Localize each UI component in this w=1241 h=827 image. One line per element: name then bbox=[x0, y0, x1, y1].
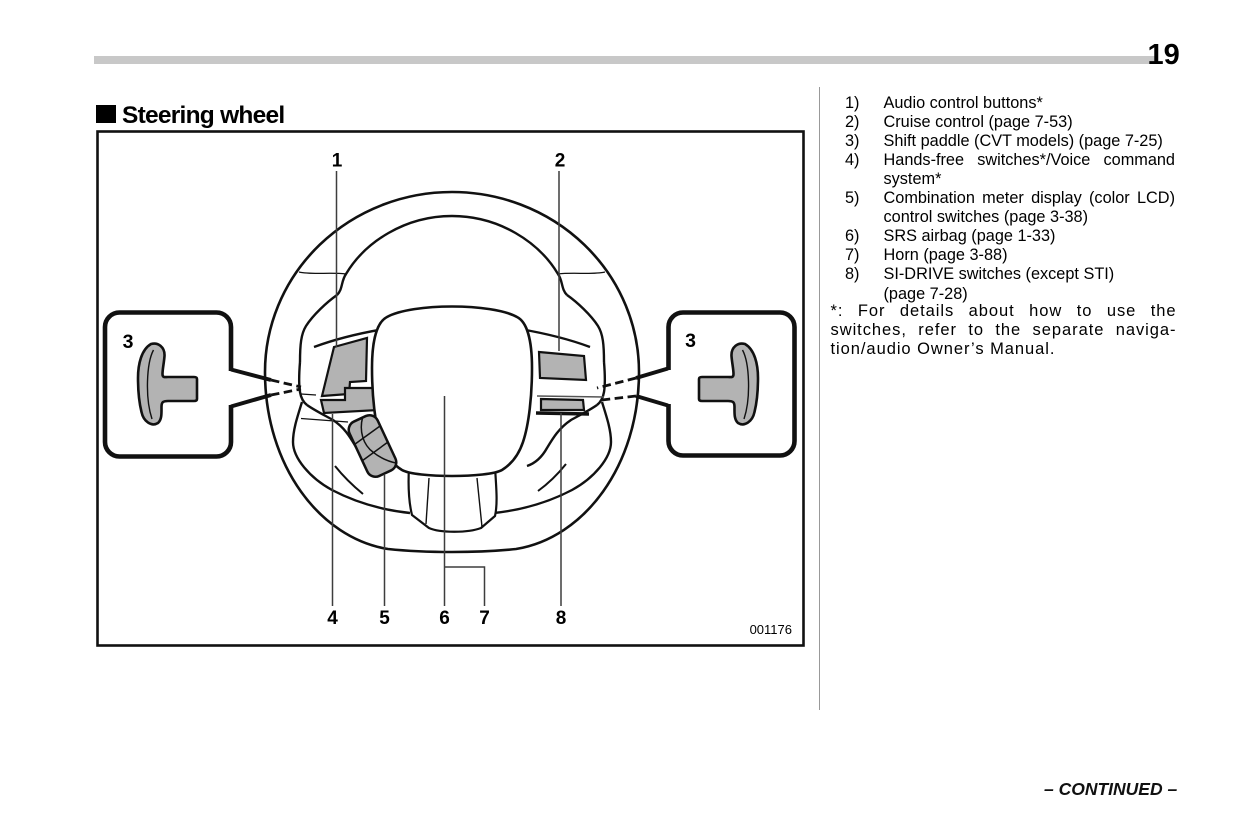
svg-text:4: 4 bbox=[327, 608, 338, 629]
svg-text:2: 2 bbox=[555, 151, 566, 172]
svg-text:1: 1 bbox=[332, 151, 343, 172]
svg-text:001176: 001176 bbox=[750, 622, 792, 637]
svg-text:3: 3 bbox=[123, 331, 134, 353]
svg-text:5: 5 bbox=[379, 608, 390, 629]
svg-text:8: 8 bbox=[556, 608, 567, 629]
svg-text:3: 3 bbox=[685, 330, 696, 352]
svg-text:7: 7 bbox=[479, 608, 490, 629]
svg-text:6: 6 bbox=[439, 608, 450, 629]
